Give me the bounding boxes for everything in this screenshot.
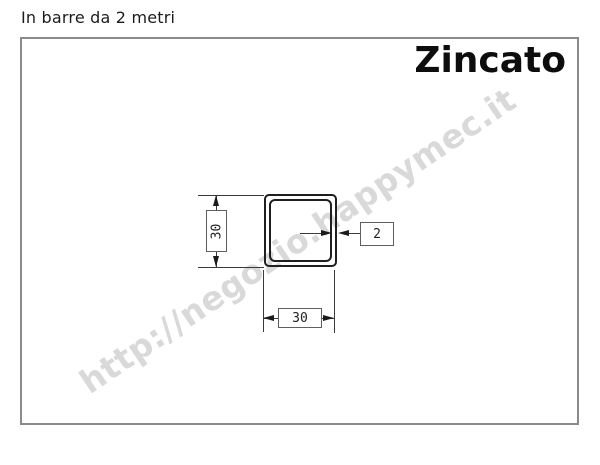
width-arrow-left-icon	[263, 315, 274, 321]
height-arrow-up-icon	[213, 195, 219, 206]
finish-title: Zincato	[414, 40, 566, 81]
thickness-arrow-left-icon	[338, 230, 349, 236]
height-arrow-down-icon	[213, 256, 219, 267]
width-extension-line-left	[263, 270, 264, 332]
width-dimension-label: 30	[292, 311, 308, 326]
width-arrow-right-icon	[323, 315, 334, 321]
width-dimension-box: 30	[278, 308, 322, 328]
thickness-dimension-box: 2	[360, 222, 394, 246]
thickness-arrow-right-icon	[321, 230, 332, 236]
thickness-leader-line-inner	[300, 233, 323, 234]
thickness-leader-line-outer	[349, 233, 360, 234]
bar-length-caption: In barre da 2 metri	[21, 8, 175, 27]
height-extension-line-top	[198, 195, 264, 196]
height-extension-line-bottom	[198, 267, 264, 268]
product-drawing-page: In barre da 2 metri http://negozio.happy…	[0, 0, 600, 465]
thickness-dimension-label: 2	[373, 227, 381, 242]
height-dimension-box: 30	[206, 210, 227, 252]
height-dimension-label: 30	[209, 223, 224, 239]
width-extension-line-right	[334, 270, 335, 333]
